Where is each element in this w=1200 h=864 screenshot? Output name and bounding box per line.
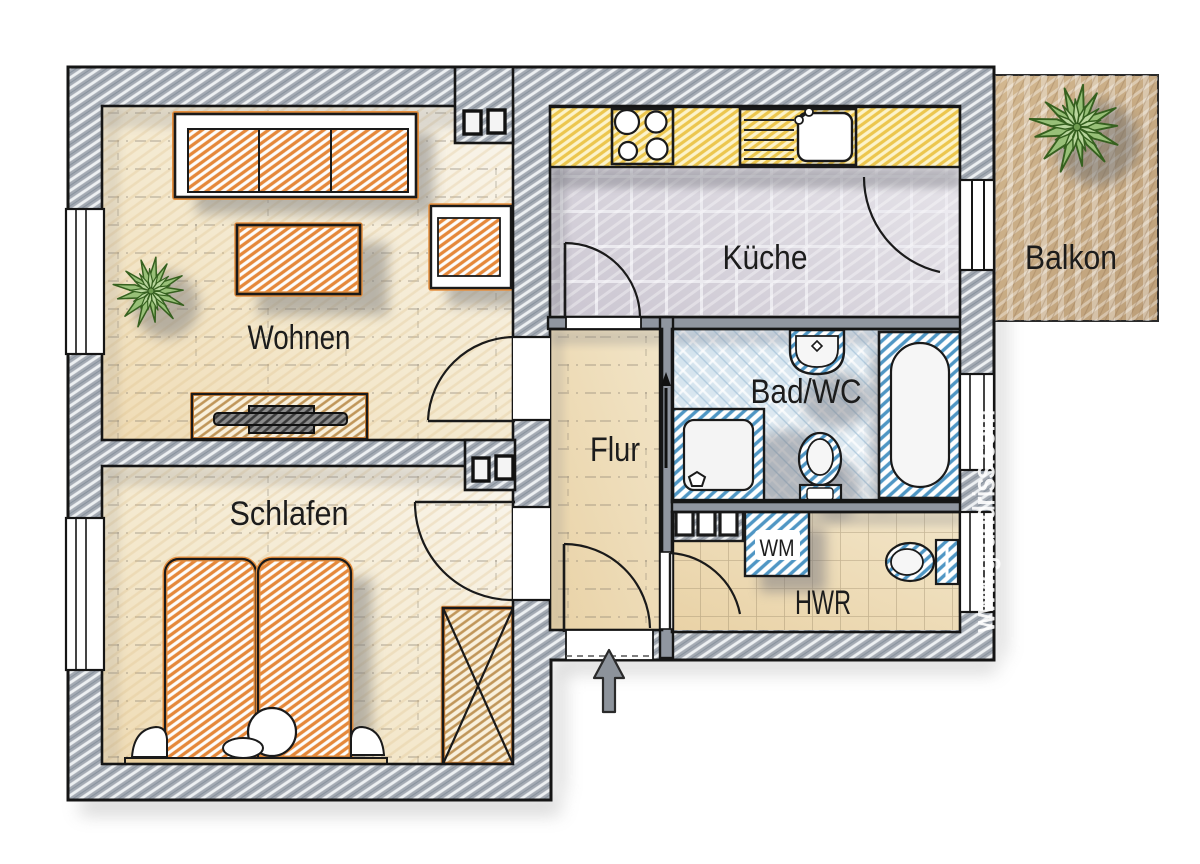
svg-text:WM: WM <box>760 535 795 562</box>
svg-text:Bad/WC: Bad/WC <box>751 373 862 411</box>
svg-text:Schlafen: Schlafen <box>230 495 349 533</box>
svg-text:Balkon: Balkon <box>1025 239 1117 277</box>
svg-text:Wohnen: Wohnen <box>248 319 351 357</box>
svg-text:www.grundriss.com: www.grundriss.com <box>968 410 1001 633</box>
svg-text:Flur: Flur <box>590 431 640 469</box>
svg-text:HWR: HWR <box>795 584 851 622</box>
svg-text:Küche: Küche <box>723 239 808 277</box>
